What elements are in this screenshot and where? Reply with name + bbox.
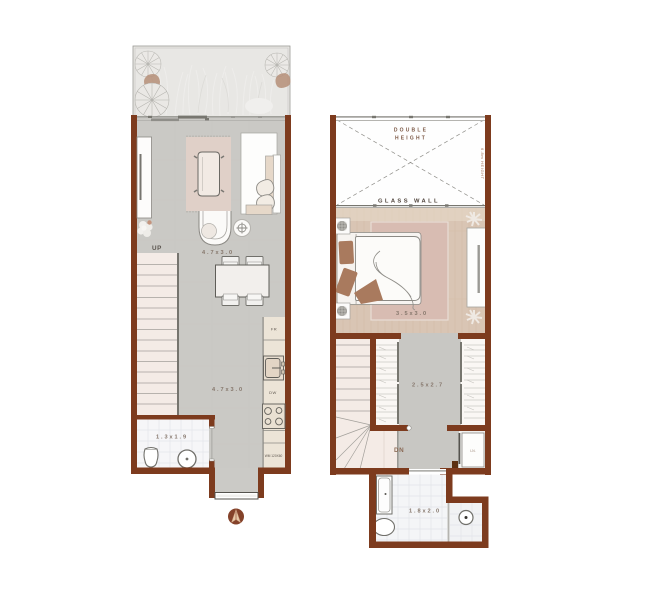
svg-text:4.7x3.0: 4.7x3.0: [212, 387, 244, 393]
svg-text:2.5x2.7: 2.5x2.7: [412, 383, 444, 389]
svg-text:3.5x3.0: 3.5x3.0: [396, 311, 428, 317]
svg-text:LN.: LN.: [470, 449, 475, 453]
svg-text:4.7x3.0: 4.7x3.0: [202, 250, 234, 256]
svg-text:DW: DW: [269, 390, 277, 395]
svg-text:HEIGHT: HEIGHT: [395, 136, 427, 142]
svg-text:WM 120X60: WM 120X60: [265, 454, 283, 458]
svg-text:GLASS WALL: GLASS WALL: [378, 199, 440, 205]
svg-text:DN: DN: [394, 447, 404, 454]
svg-text:DOUBLE: DOUBLE: [394, 128, 428, 134]
svg-text:UP: UP: [152, 245, 162, 252]
svg-text:1.3x1.9: 1.3x1.9: [156, 435, 188, 441]
svg-text:FR: FR: [271, 327, 277, 332]
svg-text:6.8m HEIGHT: 6.8m HEIGHT: [480, 148, 485, 180]
svg-text:1.8x2.0: 1.8x2.0: [409, 509, 441, 515]
